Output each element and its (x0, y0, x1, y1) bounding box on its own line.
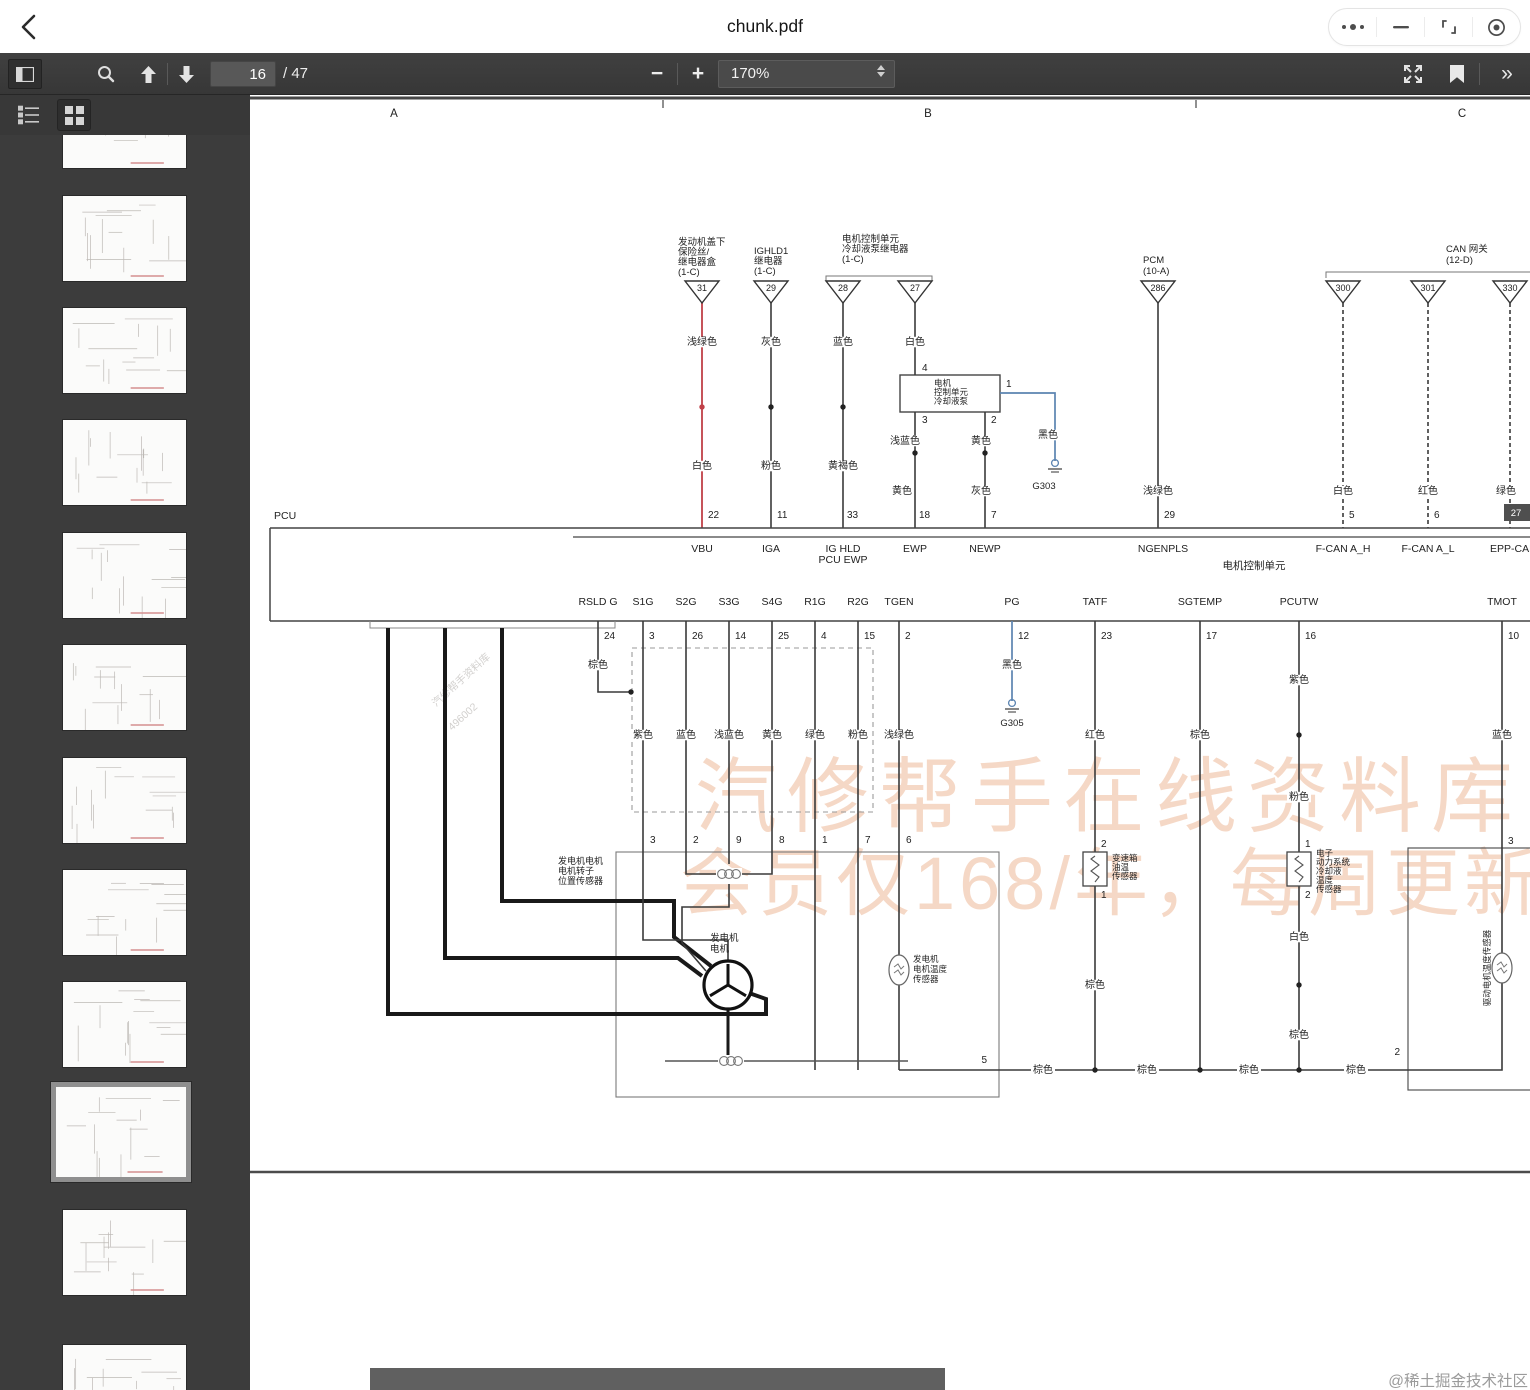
svg-text:3: 3 (649, 631, 655, 642)
svg-text:1: 1 (1305, 839, 1311, 850)
svg-text:黑色: 黑色 (1038, 428, 1058, 441)
svg-text:25: 25 (778, 631, 790, 642)
svg-text:PCUTW: PCUTW (1280, 596, 1319, 608)
svg-text:紫色: 紫色 (633, 728, 653, 741)
thumbnail-page-13[interactable] (63, 758, 186, 843)
sidebar-toggle-button[interactable] (8, 59, 42, 89)
thumbnail-page-14[interactable] (63, 870, 186, 955)
svg-text:浅绿色: 浅绿色 (1143, 484, 1173, 497)
svg-text:电机转子: 电机转子 (558, 865, 594, 876)
svg-text:TGEN: TGEN (884, 596, 913, 608)
svg-text:IGA: IGA (762, 543, 780, 555)
svg-text:2: 2 (1305, 890, 1311, 901)
svg-text:NEWP: NEWP (969, 543, 1001, 555)
next-page-icon[interactable] (172, 59, 200, 89)
svg-text:蓝色: 蓝色 (1492, 728, 1512, 741)
thumbnail-list (0, 135, 250, 1390)
svg-text:黄褐色: 黄褐色 (828, 459, 858, 472)
svg-text:7: 7 (865, 835, 871, 846)
svg-text:发电机: 发电机 (913, 954, 939, 964)
svg-text:粉色: 粉色 (1289, 790, 1309, 803)
svg-text:C: C (1458, 108, 1466, 120)
resistor-sensor (1083, 852, 1107, 886)
svg-text:300: 300 (1335, 283, 1350, 293)
svg-text:2: 2 (1101, 839, 1107, 850)
restore-window-icon[interactable] (1425, 9, 1472, 45)
svg-text:冷却液泵: 冷却液泵 (934, 396, 969, 406)
thumbnail-page-8[interactable] (63, 196, 186, 281)
svg-text:G305: G305 (1000, 718, 1023, 729)
svg-text:4: 4 (821, 631, 827, 642)
svg-text:S3G: S3G (718, 596, 739, 608)
svg-text:汽修帮手在线资料库: 汽修帮手在线资料库 (695, 752, 1523, 843)
svg-text:286: 286 (1150, 283, 1165, 293)
svg-text:PCU EWP: PCU EWP (818, 554, 867, 566)
svg-text:18: 18 (919, 510, 931, 521)
search-icon[interactable] (93, 59, 119, 89)
thumbnail-page-10[interactable] (63, 420, 186, 505)
svg-text:RSLD G: RSLD G (578, 596, 617, 608)
svg-text:27: 27 (910, 283, 920, 293)
svg-text:黄色: 黄色 (971, 434, 991, 447)
svg-text:传感器: 传感器 (1112, 871, 1138, 881)
svg-text:1: 1 (1006, 379, 1012, 390)
svg-text:发电机: 发电机 (710, 932, 739, 944)
svg-text:PCU: PCU (274, 510, 296, 522)
svg-text:NGENPLS: NGENPLS (1138, 543, 1188, 555)
svg-text:浅绿色: 浅绿色 (884, 728, 914, 741)
toolbar-divider (677, 63, 678, 85)
svg-text:2: 2 (693, 835, 699, 846)
svg-text:2: 2 (905, 631, 911, 642)
svg-text:3: 3 (922, 415, 928, 426)
svg-text:浅绿色: 浅绿色 (687, 335, 717, 348)
zoom-in-button[interactable]: + (686, 59, 710, 89)
thumbnail-page-7[interactable] (63, 135, 186, 168)
thumbnail-page-11[interactable] (63, 533, 186, 618)
svg-text:白色: 白色 (692, 459, 712, 472)
svg-text:27: 27 (1511, 508, 1522, 519)
pdf-page-view[interactable]: 汽修帮手在线资料库会员仅168/年，每周更新汽修帮手资料库49600231292… (250, 95, 1530, 1390)
svg-text:棕色: 棕色 (588, 658, 608, 671)
fullscreen-icon[interactable] (1398, 59, 1428, 89)
thumbnail-preview (63, 982, 186, 1067)
svg-text:29: 29 (1164, 510, 1176, 521)
target-circle-icon[interactable] (1473, 9, 1520, 45)
svg-text:1: 1 (822, 835, 828, 846)
svg-text:红色: 红色 (1085, 728, 1105, 741)
svg-text:11: 11 (777, 510, 788, 521)
thumbnail-preview (63, 758, 186, 843)
svg-text:R1G: R1G (804, 596, 826, 608)
svg-text:棕色: 棕色 (1289, 1028, 1309, 1041)
page-number-input[interactable] (210, 61, 276, 87)
thumbnail-preview (63, 196, 186, 281)
more-menu-icon[interactable] (1329, 9, 1376, 45)
svg-text:绿色: 绿色 (805, 728, 825, 741)
thumbnail-preview (63, 533, 186, 618)
svg-text:4: 4 (922, 363, 928, 374)
svg-text:F-CAN A_H: F-CAN A_H (1316, 543, 1371, 555)
svg-text:(1-C): (1-C) (678, 267, 700, 278)
outline-view-icon[interactable] (12, 99, 46, 131)
svg-text:浅蓝色: 浅蓝色 (714, 728, 744, 741)
svg-text:(1-C): (1-C) (754, 266, 776, 277)
thumbnail-preview (63, 645, 186, 730)
svg-text:白色: 白色 (905, 335, 925, 348)
sidebar-view-switcher (0, 95, 250, 135)
oval-sensor (889, 955, 909, 985)
svg-text:灰色: 灰色 (761, 335, 781, 348)
spinner-icon (877, 65, 885, 77)
svg-text:PCM: PCM (1143, 255, 1164, 266)
pdf-toolbar: / 47 − + 170% » (0, 53, 1530, 95)
svg-text:驱动电机温度传感器: 驱动电机温度传感器 (1482, 929, 1492, 1006)
thumbnails-view-icon[interactable] (57, 99, 91, 131)
thumbnail-preview (63, 1345, 186, 1390)
svg-text:B: B (924, 108, 932, 120)
svg-text:9: 9 (736, 835, 742, 846)
svg-text:棕色: 棕色 (1033, 1063, 1053, 1076)
thumbnail-preview (63, 308, 186, 393)
svg-text:16: 16 (1305, 631, 1317, 642)
svg-text:S4G: S4G (761, 596, 782, 608)
svg-text:黑色: 黑色 (1002, 658, 1022, 671)
svg-text:2: 2 (991, 415, 997, 426)
oval-sensor (1492, 953, 1512, 983)
svg-text:5: 5 (981, 1055, 987, 1066)
svg-text:A: A (390, 108, 398, 120)
svg-text:3: 3 (650, 835, 656, 846)
thumbnail-page-15[interactable] (63, 982, 186, 1067)
svg-text:紫色: 紫色 (1289, 673, 1309, 686)
svg-text:蓝色: 蓝色 (676, 728, 696, 741)
window-controls (1328, 8, 1521, 46)
svg-text:TMOT: TMOT (1487, 596, 1517, 608)
svg-text:(10-A): (10-A) (1143, 266, 1169, 277)
thumbnail-preview (63, 1210, 186, 1295)
svg-text:23: 23 (1101, 631, 1113, 642)
svg-text:2: 2 (1394, 1047, 1400, 1058)
svg-text:1: 1 (1101, 890, 1107, 901)
svg-text:EPP-CAN_: EPP-CAN_ (1490, 543, 1530, 555)
svg-text:8: 8 (779, 835, 785, 846)
svg-text:301: 301 (1420, 283, 1435, 293)
previous-page-icon[interactable] (134, 59, 162, 89)
svg-text:10: 10 (1508, 631, 1520, 642)
svg-text:15: 15 (864, 631, 876, 642)
svg-text:黄色: 黄色 (892, 484, 912, 497)
thumbnail-preview (63, 870, 186, 955)
svg-text:496002: 496002 (446, 701, 480, 733)
svg-text:7: 7 (991, 510, 997, 521)
svg-text:棕色: 棕色 (1190, 728, 1210, 741)
svg-text:黄色: 黄色 (762, 728, 782, 741)
app-header: chunk.pdf (0, 0, 1530, 53)
svg-text:29: 29 (766, 283, 776, 293)
toolbar-divider (1479, 63, 1480, 85)
zoom-level-value: 170% (731, 65, 769, 82)
wiring-diagram-svg: 汽修帮手在线资料库会员仅168/年，每周更新汽修帮手资料库49600231292… (250, 95, 1530, 1390)
svg-text:S1G: S1G (632, 596, 653, 608)
zoom-level-select[interactable]: 170% (718, 60, 895, 88)
minimize-icon[interactable] (1377, 9, 1424, 45)
svg-text:31: 31 (697, 283, 707, 293)
svg-text:6: 6 (1434, 510, 1440, 521)
svg-text:5: 5 (1349, 510, 1355, 521)
svg-text:24: 24 (604, 631, 616, 642)
toolbar-more-button[interactable]: » (1492, 59, 1522, 89)
svg-text:EWP: EWP (903, 543, 927, 555)
svg-text:白色: 白色 (1289, 930, 1309, 943)
svg-text:粉色: 粉色 (761, 459, 781, 472)
zoom-out-button[interactable]: − (645, 59, 669, 89)
svg-text:电机控制单元: 电机控制单元 (1223, 559, 1286, 572)
svg-text:TATF: TATF (1083, 596, 1108, 608)
svg-text:传感器: 传感器 (1316, 884, 1342, 894)
thumbnail-page-17[interactable] (63, 1210, 186, 1295)
thumbnail-page-9[interactable] (63, 308, 186, 393)
svg-text:SGTEMP: SGTEMP (1178, 596, 1222, 608)
svg-text:粉色: 粉色 (848, 728, 868, 741)
svg-text:棕色: 棕色 (1137, 1063, 1157, 1076)
svg-text:浅蓝色: 浅蓝色 (890, 434, 920, 447)
resistor-sensor (1287, 852, 1311, 886)
thumbnail-preview (63, 135, 186, 168)
svg-text:@稀土掘金技术社区: @稀土掘金技术社区 (1388, 1372, 1528, 1390)
svg-text:3: 3 (1508, 836, 1514, 847)
svg-text:红色: 红色 (1418, 484, 1438, 497)
svg-text:26: 26 (692, 631, 704, 642)
thumbnail-page-18[interactable] (63, 1345, 186, 1390)
page-count-label: / 47 (283, 53, 308, 95)
svg-text:S2G: S2G (675, 596, 696, 608)
svg-text:蓝色: 蓝色 (833, 335, 853, 348)
thumbnail-preview (56, 1087, 186, 1177)
svg-text:R2G: R2G (847, 596, 869, 608)
svg-text:33: 33 (847, 510, 859, 521)
svg-text:灰色: 灰色 (971, 484, 991, 497)
svg-text:棕色: 棕色 (1239, 1063, 1259, 1076)
svg-text:位置传感器: 位置传感器 (558, 875, 603, 886)
svg-text:绿色: 绿色 (1496, 484, 1516, 497)
bookmark-icon[interactable] (1444, 59, 1470, 89)
svg-text:电机: 电机 (710, 943, 730, 955)
thumbnail-preview (63, 420, 186, 505)
thumbnail-sidebar (0, 95, 250, 1390)
svg-text:28: 28 (838, 283, 848, 293)
svg-text:22: 22 (708, 510, 720, 521)
svg-text:传感器: 传感器 (913, 974, 939, 984)
toolbar-divider (167, 63, 168, 85)
svg-text:发电机电机: 发电机电机 (558, 855, 603, 866)
thumbnail-page-16[interactable] (56, 1087, 186, 1177)
svg-text:17: 17 (1206, 631, 1218, 642)
svg-text:12: 12 (1018, 631, 1030, 642)
svg-text:G303: G303 (1032, 481, 1055, 492)
svg-text:(1-C): (1-C) (842, 254, 864, 265)
svg-text:棕色: 棕色 (1085, 978, 1105, 991)
svg-text:白色: 白色 (1333, 484, 1353, 497)
svg-text:(12-D): (12-D) (1446, 255, 1473, 266)
svg-text:CAN 网关: CAN 网关 (1446, 243, 1488, 255)
svg-text:汽修帮手资料库: 汽修帮手资料库 (429, 650, 492, 709)
svg-text:PG: PG (1004, 596, 1019, 608)
document-title: chunk.pdf (0, 0, 1530, 53)
svg-text:14: 14 (735, 631, 747, 642)
svg-text:330: 330 (1502, 283, 1517, 293)
svg-text:F-CAN A_L: F-CAN A_L (1401, 543, 1454, 555)
svg-text:棕色: 棕色 (1346, 1063, 1366, 1076)
svg-text:6: 6 (906, 835, 912, 846)
svg-text:电机温度: 电机温度 (913, 964, 948, 974)
svg-text:VBU: VBU (691, 543, 713, 555)
thumbnail-page-12[interactable] (63, 645, 186, 730)
